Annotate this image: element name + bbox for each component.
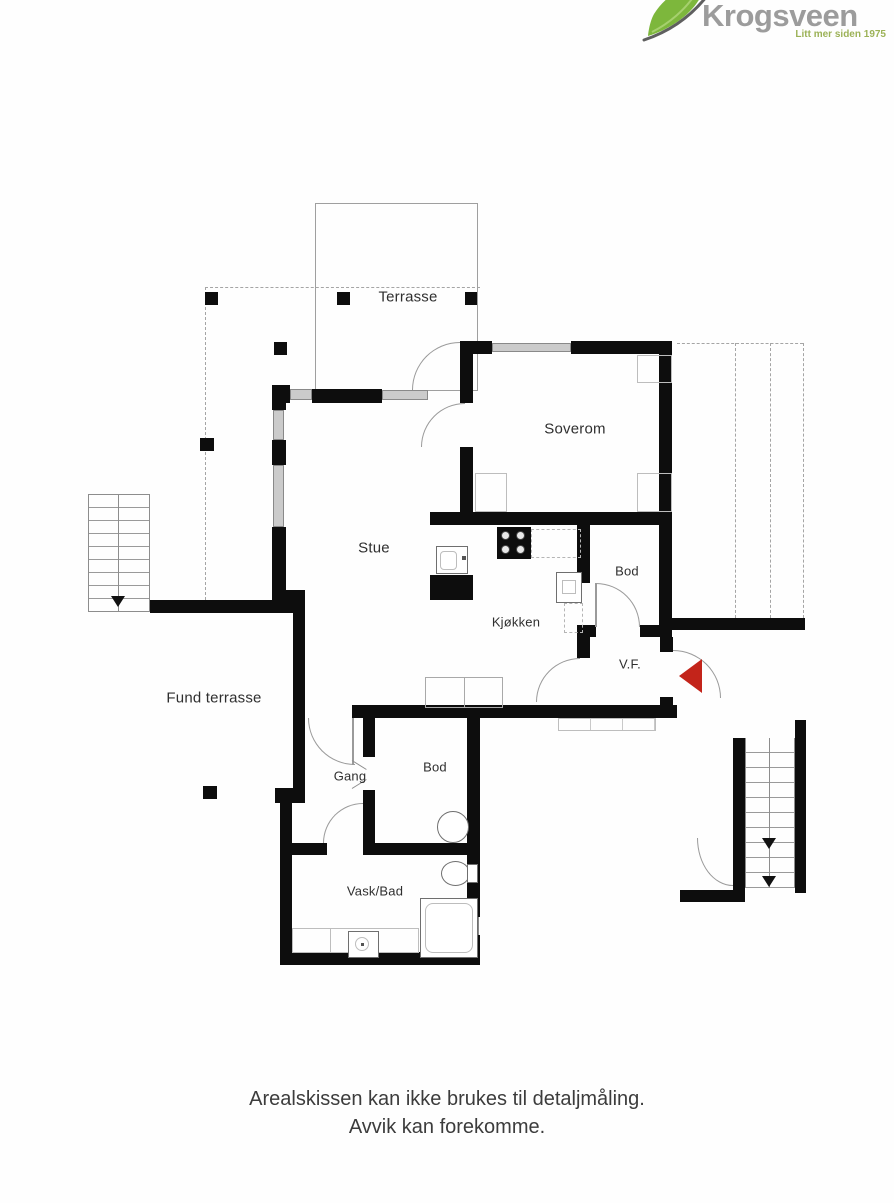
- roof-overhang-dashed: [677, 343, 803, 344]
- wall: [660, 637, 673, 652]
- terrace-post: [203, 786, 217, 799]
- stove-burner: [516, 531, 525, 540]
- wall: [363, 712, 375, 757]
- wall: [293, 613, 305, 793]
- door-arc-soverom: [421, 403, 465, 447]
- wall: [660, 697, 673, 712]
- wall: [272, 590, 305, 613]
- stove-burner: [516, 545, 525, 554]
- terrace-post: [274, 342, 287, 355]
- wall: [659, 525, 672, 625]
- exterior-stairs-right: [745, 738, 795, 888]
- furniture-divider: [464, 677, 465, 708]
- window: [290, 389, 312, 400]
- wall: [280, 843, 327, 855]
- door-arc-vaskbad: [323, 803, 363, 843]
- wall: [672, 618, 805, 630]
- stairs-center-line: [118, 494, 119, 612]
- window: [273, 465, 284, 527]
- room-label-vask-bad: Vask/Bad: [347, 884, 403, 899]
- room-label-stue: Stue: [358, 540, 390, 557]
- room-label-soverom: Soverom: [544, 421, 605, 438]
- room-label-bod-lower: Bod: [423, 760, 447, 775]
- stairs-down-arrow-icon: [762, 876, 776, 887]
- window: [492, 343, 571, 352]
- roof-overhang-dashed: [770, 343, 771, 618]
- wall: [280, 800, 292, 965]
- shower-cabin-inner: [425, 903, 473, 953]
- room-label-fund-terrasse: Fund terrasse: [166, 690, 261, 707]
- terrace-post: [205, 292, 218, 305]
- door-arc-vf-kitchen: [536, 658, 580, 702]
- wall: [150, 600, 275, 613]
- wall: [352, 705, 677, 718]
- terrace-post: [200, 438, 214, 451]
- entrance-arrow-icon: [679, 659, 702, 693]
- wall: [430, 575, 473, 600]
- wall: [680, 890, 745, 902]
- stairs-center-line: [769, 738, 770, 888]
- wall: [272, 385, 286, 410]
- door-arc-gang: [308, 718, 355, 765]
- closet-outline: [637, 355, 672, 383]
- counter-outline: [564, 603, 583, 633]
- wall: [733, 738, 745, 902]
- disclaimer: Arealskissen kan ikke brukes til detaljm…: [0, 1085, 894, 1141]
- wall: [460, 447, 473, 512]
- wall: [577, 637, 590, 658]
- wall: [363, 790, 375, 845]
- wall: [640, 625, 672, 637]
- stairs-down-arrow-icon: [762, 838, 776, 849]
- window: [382, 390, 428, 400]
- room-label-terrasse: Terrasse: [378, 289, 437, 306]
- door-leaf: [352, 718, 354, 765]
- room-label-gang: Gang: [334, 769, 367, 784]
- kitchen-sink-tap: [462, 556, 466, 560]
- wall: [430, 512, 672, 525]
- wall: [363, 843, 480, 855]
- wall: [467, 712, 480, 917]
- window: [273, 410, 284, 440]
- kitchen-sink-basin: [440, 551, 457, 570]
- krogsveen-logo: Krogsveen Litt mer siden 1975: [630, 0, 894, 50]
- wall: [460, 341, 473, 403]
- toilet-bowl: [441, 861, 470, 886]
- wall: [272, 440, 286, 465]
- door-leaf: [595, 583, 597, 627]
- closet-outline: [637, 473, 672, 512]
- disclaimer-line2: Avvik kan forekomme.: [0, 1113, 894, 1141]
- door-arc-bod-upper: [596, 583, 640, 627]
- exterior-stairs-left: [88, 494, 150, 612]
- wall: [312, 389, 382, 403]
- water-heater: [437, 811, 469, 843]
- brand-tagline: Litt mer siden 1975: [760, 29, 886, 40]
- floor-plan-page: Krogsveen Litt mer siden 1975: [0, 0, 894, 1203]
- door-arc-understairs: [697, 838, 733, 886]
- closet-outline: [475, 473, 507, 512]
- toilet-tank: [467, 864, 478, 883]
- stairs-down-arrow-icon: [111, 596, 125, 607]
- stove-burner: [501, 531, 510, 540]
- porch-step: [558, 718, 656, 731]
- disclaimer-line1: Arealskissen kan ikke brukes til detaljm…: [0, 1085, 894, 1113]
- room-label-vf: V.F.: [619, 657, 641, 672]
- bathroom-counter-divider: [330, 928, 331, 953]
- counter-outline: [531, 529, 581, 558]
- room-label-bod-upper: Bod: [615, 564, 639, 579]
- bathroom-sink-drain: [361, 943, 364, 946]
- kitchen-appliance-detail: [562, 580, 576, 594]
- wall: [571, 341, 672, 354]
- wall: [795, 720, 806, 893]
- roof-overhang-dashed: [735, 343, 736, 618]
- stove-burner: [501, 545, 510, 554]
- room-label-kjokken: Kjøkken: [492, 615, 540, 630]
- roof-overhang-dashed: [803, 343, 804, 618]
